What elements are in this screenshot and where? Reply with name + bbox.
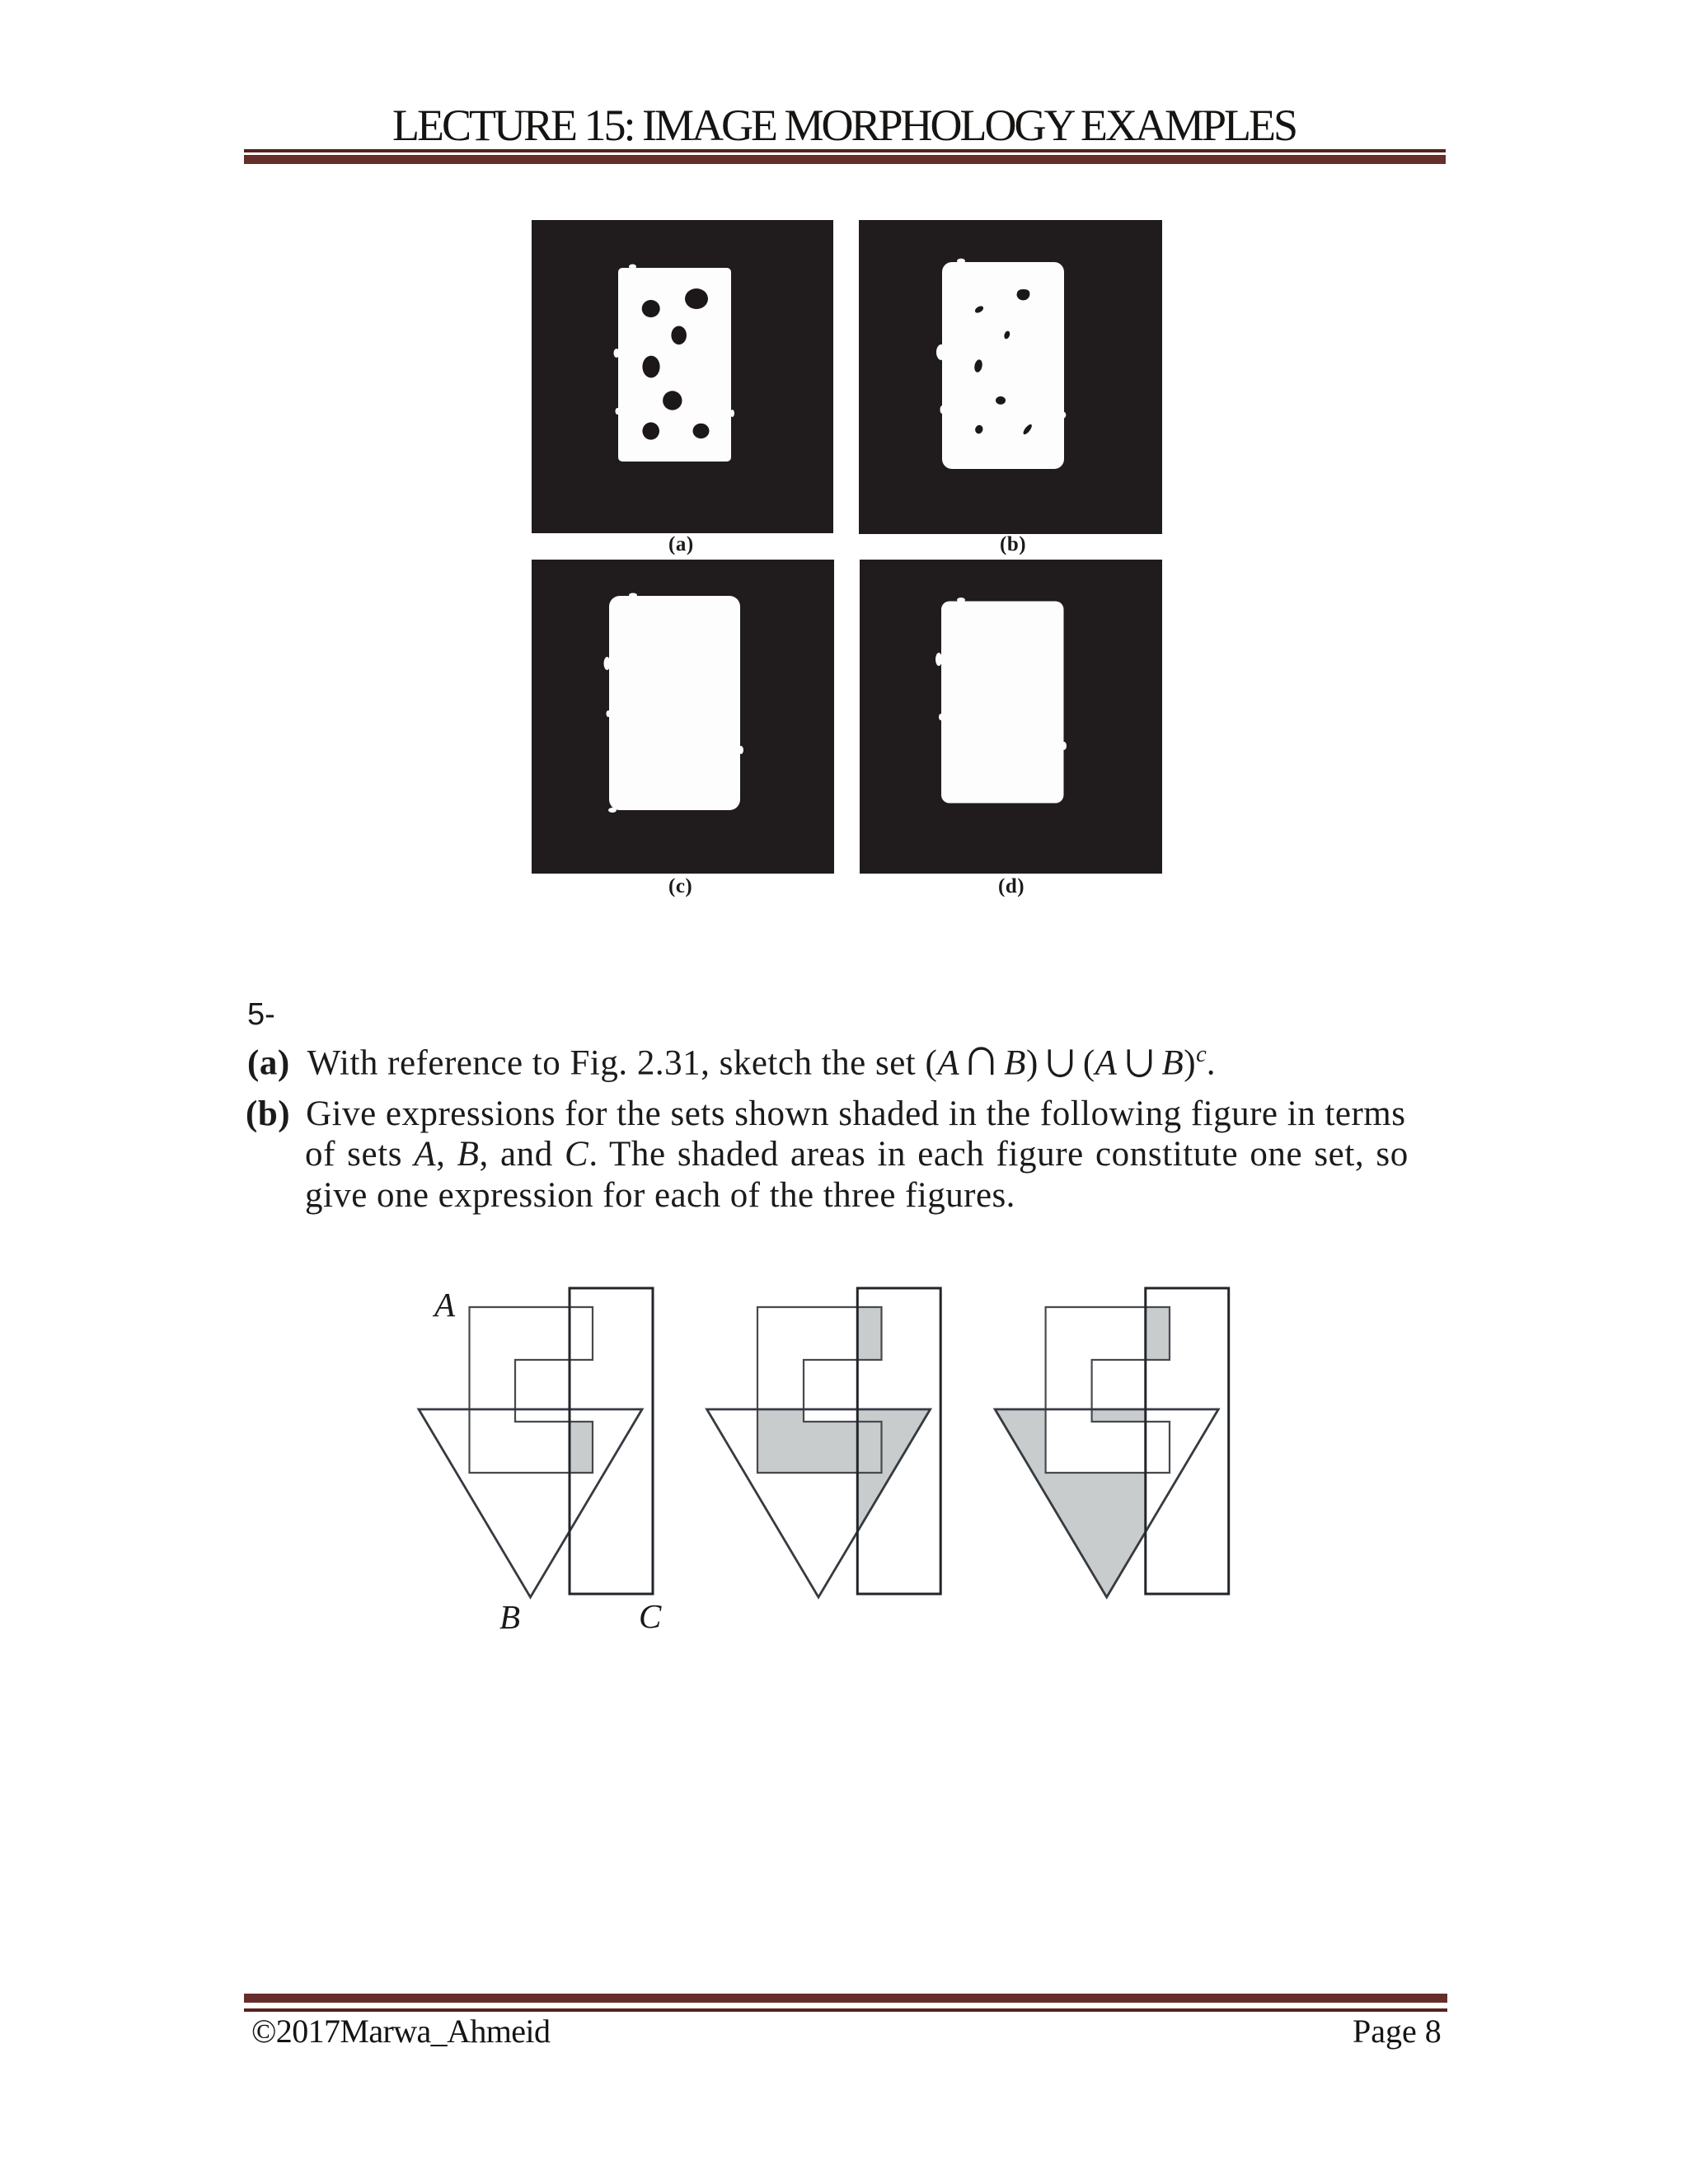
svg-text:A: A: [432, 1286, 456, 1324]
svg-text:B: B: [499, 1598, 520, 1636]
svg-text:C: C: [639, 1597, 662, 1635]
